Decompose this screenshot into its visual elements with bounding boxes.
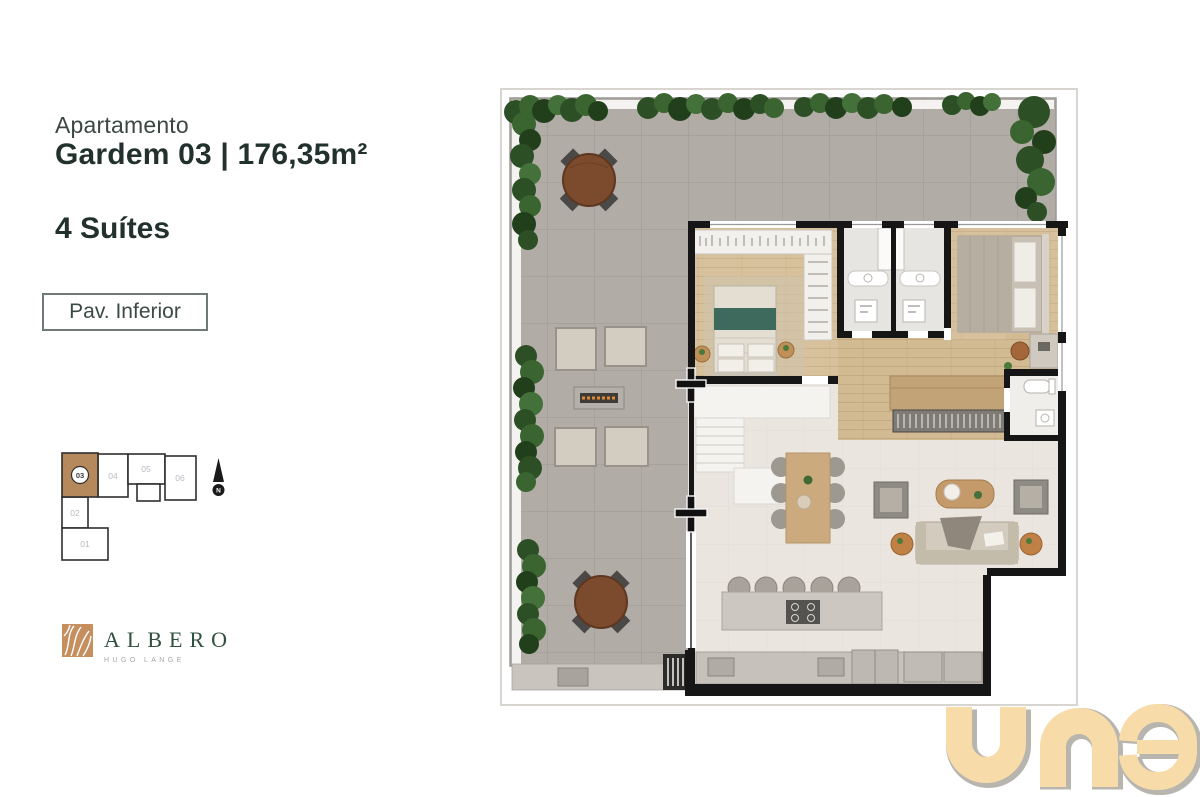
albero-tree-icon (62, 624, 93, 657)
apartment-title: Gardem 03 | 176,35m² (55, 138, 368, 172)
wc-right (903, 300, 925, 322)
cooktop (786, 600, 820, 624)
suite2-desk-chair (1011, 342, 1029, 360)
wall-suite2bath-bottom (1004, 435, 1066, 441)
unit-01-label: 01 (80, 539, 90, 549)
outdoor-dining-table-bottom (572, 570, 631, 633)
vanity-right (900, 271, 940, 286)
wall-bath-divider (891, 221, 896, 331)
unit-05-label: 05 (141, 464, 151, 474)
buffet-glass-rack (890, 376, 1008, 432)
terrace-sink (558, 668, 588, 686)
una-letter-n (1053, 721, 1105, 787)
buffet-sideboard (890, 376, 1008, 410)
outdoor-dining-table-top (560, 148, 619, 211)
suite2-bed (958, 234, 1049, 334)
suites-count: 4 Suítes (55, 212, 170, 246)
suite1-bed (712, 286, 778, 378)
floor-plan (500, 88, 1078, 706)
wall-left-upper (688, 221, 695, 384)
door-suite2-bath (1004, 388, 1010, 412)
closet-top (694, 230, 832, 254)
lounge-chair (605, 427, 648, 466)
unit-04-label: 04 (108, 471, 118, 481)
cabinet (904, 652, 942, 682)
lounge-chair (556, 328, 596, 370)
wall-bottom (685, 684, 991, 696)
lounge-chair (555, 428, 596, 466)
unit-03-label: 03 (76, 471, 84, 480)
closet-side (804, 254, 832, 340)
wall-grill (685, 650, 695, 694)
brand-subtitle: HUGO LANGE (104, 657, 234, 664)
compass-n-letter: N (216, 488, 221, 495)
wc-left (855, 300, 877, 322)
door-suite1 (802, 376, 828, 384)
cabinet (944, 652, 982, 682)
unit-key-plan: 03 04 05 06 02 01 N (58, 450, 233, 570)
north-compass-icon: N (213, 458, 225, 496)
grill-vent (663, 654, 687, 690)
floor-level-badge[interactable]: Pav. Inferior (42, 293, 208, 331)
brochure-page: Apartamento Gardem 03 | 176,35m² 4 Suíte… (0, 0, 1200, 797)
terrace-bottom-counter (512, 664, 688, 690)
unit-06-label: 06 (175, 473, 185, 483)
unit-02-label: 02 (70, 508, 80, 518)
brand-name: ALBERO (104, 629, 234, 651)
side-table-left (891, 533, 913, 555)
plant (1004, 362, 1012, 370)
wall-suite2bath-top (1004, 369, 1066, 376)
developer-brand: ALBERO HUGO LANGE (62, 624, 234, 664)
counter-sink (818, 658, 844, 676)
lounge-chair (605, 327, 646, 366)
una-watermark-logo: una (932, 701, 1200, 795)
vanity-left (848, 271, 888, 286)
wall-suite1-bath (837, 221, 844, 331)
wall-bath-suite2 (944, 221, 951, 340)
wall-notch-horizontal (987, 568, 1066, 576)
counter-sink (708, 658, 734, 676)
door-bath-right (908, 331, 928, 338)
wall-notch-vertical (983, 575, 991, 690)
door-suite2 (944, 328, 951, 340)
door-bath-left (852, 331, 872, 338)
bath-sink (1036, 410, 1054, 426)
apartment-label: Apartamento (55, 112, 189, 139)
toilet (1024, 380, 1050, 393)
unit-05-tab (137, 484, 160, 501)
una-letter-u (959, 707, 1013, 770)
sofa-pillow (983, 531, 1005, 548)
side-table-right (1020, 533, 1042, 555)
sofa (916, 516, 1018, 564)
